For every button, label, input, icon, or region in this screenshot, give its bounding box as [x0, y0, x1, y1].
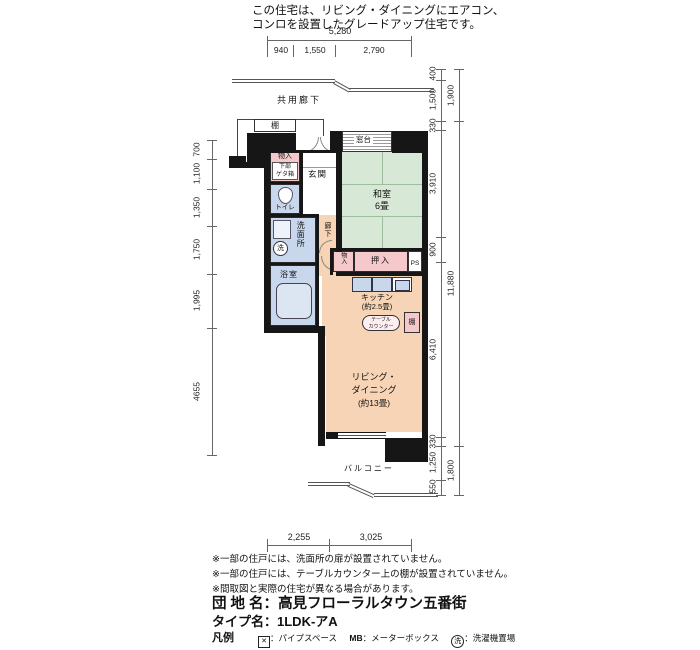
living-label-line1: リビング・ [324, 372, 424, 382]
small-storage-label: 物入 [339, 252, 346, 272]
dimension-label: 11,880 [446, 261, 457, 307]
bathtub-icon [276, 283, 312, 319]
kitchen-counter [352, 277, 372, 292]
wall-segment [270, 214, 316, 217]
kitchen-counter [372, 277, 392, 292]
tatami-size-label: 6畳 [342, 201, 422, 211]
sink-icon [273, 220, 291, 239]
wall-segment [336, 272, 422, 276]
living-dining-area [326, 336, 422, 432]
washer-icon: 洗 [273, 241, 288, 256]
wall-segment [264, 326, 324, 333]
dimension-line [459, 69, 460, 495]
legend-meter-box-text: ：メーターボックス [363, 633, 439, 643]
note-line: ※間取図と実際の住宅が異なる場合があります。 [212, 581, 419, 595]
dimension-tick [454, 69, 464, 70]
dimension-label: 1,800 [446, 448, 457, 494]
wall-segment [326, 432, 338, 439]
entrance-step-line [303, 167, 336, 168]
legend-title: 凡例 [212, 632, 234, 645]
table-counter-line2: カウンター [368, 324, 393, 330]
dimension-label: 900 [428, 227, 439, 273]
washroom-label: 洗面所 [296, 221, 305, 263]
dimension-tick [411, 45, 412, 57]
wall-segment [270, 263, 316, 265]
note-line: ※一部の住戸には、洗面所の扉が設置されていません。 [212, 551, 447, 565]
floor-plan-page: この住宅は、リビング・ダイニングにエアコン、 コンロを設置したグレードアップ住宅… [0, 0, 700, 650]
balcony-label: バルコニー [344, 464, 394, 473]
tatami-seam [382, 152, 383, 184]
kitchen-label: キッチン [332, 293, 422, 302]
legend-row: ✕：パイプスペース MB：メーターボックス 洗：洗濯機置場 [258, 634, 515, 648]
header-description-line1: この住宅は、リビング・ダイニングにエアコン、 [252, 5, 504, 18]
dimension-line [212, 140, 213, 455]
dimension-label: 3,910 [428, 161, 439, 207]
pipe-space-label: PS [408, 260, 422, 267]
dimension-label: 2,255 [277, 532, 321, 543]
washer-symbol-icon: 洗 [451, 635, 464, 648]
dimension-label: 5,280 [300, 26, 380, 37]
dimension-tick [454, 495, 464, 496]
wall-segment [270, 150, 336, 153]
wall-segment [330, 248, 422, 251]
toilet-label: トイレ [270, 204, 300, 211]
pipe-space-symbol-icon: ✕ [258, 636, 270, 648]
shelf-box: 棚 [254, 119, 296, 132]
geta-box-line2: ゲタ箱 [276, 172, 294, 178]
balcony-window [338, 432, 386, 439]
entry-storage-label: 物入 [270, 153, 300, 161]
dimension-label: 3,025 [349, 532, 393, 543]
dimension-label: 1,750 [192, 227, 203, 273]
dimension-tick [207, 455, 217, 456]
balcony-railing [347, 483, 374, 498]
dimension-label: 550 [428, 464, 439, 510]
legend-washer-text: ：洗濯機置場 [464, 633, 515, 643]
wall-segment [422, 131, 428, 462]
wall-segment [318, 326, 325, 446]
kitchen-sink-icon [395, 280, 410, 291]
dimension-line [268, 40, 412, 41]
dimension-label: 4655 [192, 369, 203, 415]
wall-segment [270, 182, 300, 184]
tatami-seam [382, 216, 383, 248]
bathroom-label: 浴室 [280, 270, 298, 279]
wall-segment [330, 248, 333, 275]
living-size-label: (約13畳) [324, 399, 424, 409]
dimension-tick [207, 328, 217, 329]
closet-label: 押入 [354, 256, 408, 265]
dimension-tick [207, 159, 217, 160]
dimension-tick [454, 121, 464, 122]
dimension-label: 1,350 [192, 185, 203, 231]
geta-box-label: 下部 ゲタ箱 [272, 162, 298, 180]
wall-segment [264, 150, 270, 332]
dimension-label: 330 [428, 103, 439, 149]
dimension-label: 1,550 [293, 45, 337, 56]
dimension-tick [411, 36, 412, 45]
dimension-tick [207, 189, 217, 190]
estate-name-row: 団 地 名：高見フローラルタウン五番街 [212, 596, 467, 613]
tatami-room-label: 和室 [342, 189, 422, 199]
wall-segment [316, 214, 319, 326]
kitchen-size-label: (約2.5畳) [332, 303, 422, 312]
window-sill-label: 窓台 [354, 136, 373, 145]
table-counter: テーブル カウンター [362, 315, 400, 331]
wall-segment [300, 150, 303, 215]
geta-box-line1: 下部 [279, 164, 291, 170]
dimension-line [441, 69, 442, 495]
dimension-tick [267, 36, 268, 45]
dimension-line [268, 545, 412, 546]
dimension-label: 1,900 [446, 73, 457, 119]
type-name-row: タイプ名：1LDK-アA [212, 615, 338, 630]
note-line: ※一部の住戸には、テーブルカウンター上の棚が設置されていません。 [212, 566, 513, 580]
wall-segment [385, 438, 428, 462]
dimension-label: 2,790 [352, 45, 396, 56]
estate-name-label: 団 地 名： [212, 596, 278, 612]
dimension-tick [207, 140, 217, 141]
corridor-edge-line [232, 79, 335, 83]
entrance-label: 玄関 [308, 170, 327, 180]
dimension-tick [207, 274, 217, 275]
type-name-label: タイプ名： [212, 614, 277, 629]
type-name-value: 1LDK-アA [277, 614, 338, 629]
legend-pipe-space-text: ：パイプスペース [270, 633, 337, 643]
kitchen-shelf: 棚 [404, 312, 420, 333]
estate-name-value: 高見フローラルタウン五番街 [278, 596, 467, 612]
wall-segment [336, 131, 342, 252]
dimension-label: 1,995 [192, 278, 203, 324]
balcony-railing [374, 493, 438, 497]
balcony-railing [308, 482, 350, 486]
living-label-line2: ダイニング [324, 385, 424, 395]
dimension-tick [207, 226, 217, 227]
corridor-edge-line [349, 88, 434, 92]
dimension-label: 6,410 [428, 327, 439, 373]
table-counter-line1: テーブル [371, 317, 391, 323]
common-corridor-label: 共用廊下 [277, 95, 321, 105]
tatami-seam [342, 184, 422, 185]
meter-box-symbol: MB [349, 633, 362, 643]
